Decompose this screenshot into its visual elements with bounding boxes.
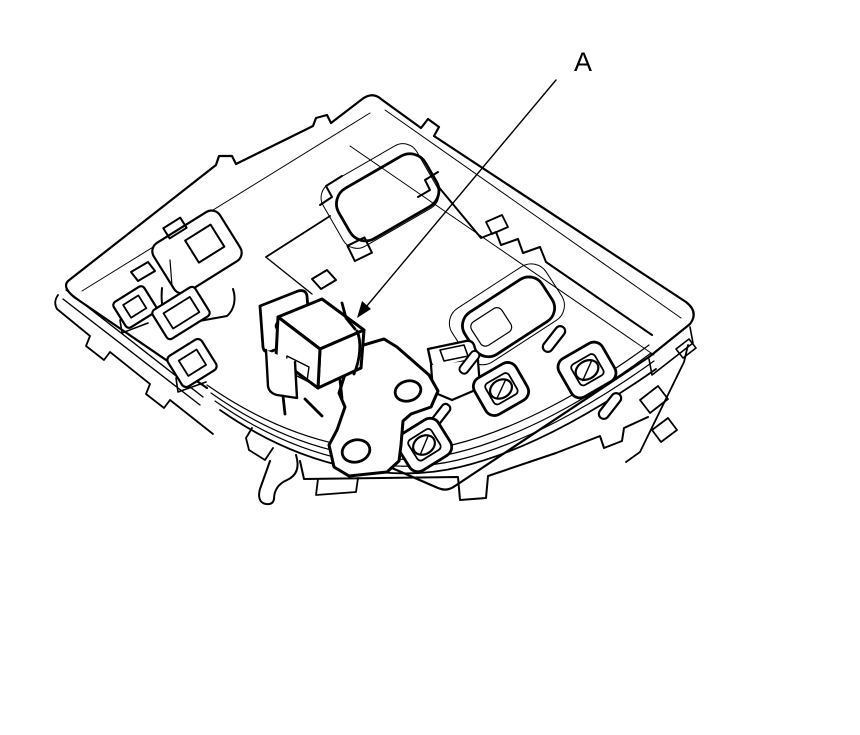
stepped-cutout-mid [418,172,438,197]
relay-box-figure: A [0,0,860,735]
socket-small-1 [112,285,158,330]
callout-a: A [357,47,592,318]
relay-leg [305,399,322,416]
front-wall-hook-tab [259,455,297,504]
surface-diamond-hole [312,270,336,289]
callout-label: A [574,47,592,77]
terminal-socket-2 [554,338,619,401]
blade-pin [541,324,567,354]
relay-leg [340,380,342,398]
leader-line [366,80,556,307]
slot-cutout-top [315,137,446,254]
fuse-relay-box-illustration: A [0,0,860,735]
relay-leg [283,396,285,414]
clip-tab [131,262,155,281]
socket-small-3 [166,337,219,389]
surface-square-tab [486,215,508,234]
socket-small-2 [151,285,211,340]
